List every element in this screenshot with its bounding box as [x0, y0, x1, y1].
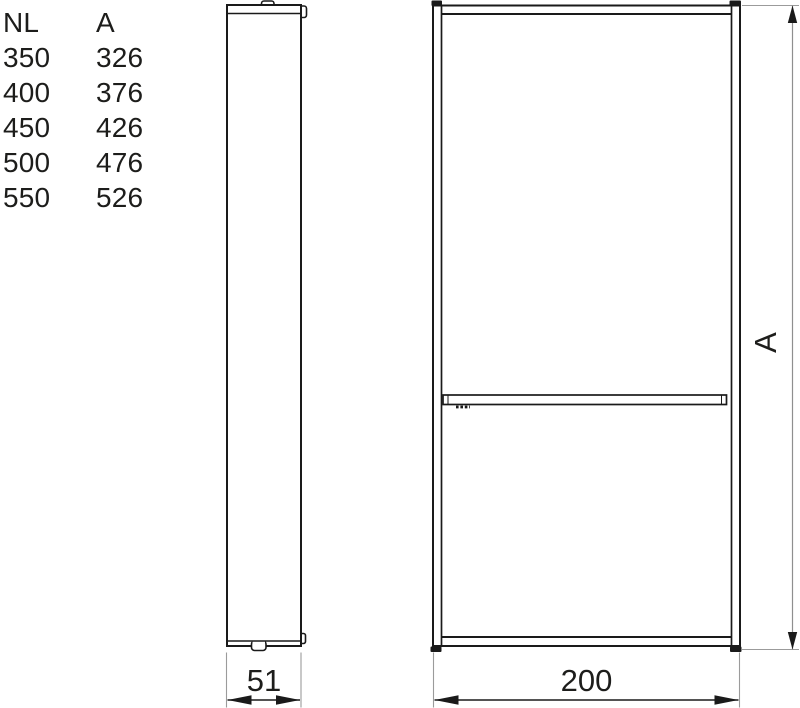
side-body-outline	[227, 5, 301, 646]
front-view	[431, 1, 742, 653]
dimension-side-width: 51	[227, 653, 302, 708]
arrow-up-icon	[788, 6, 797, 24]
arrow-down-icon	[788, 632, 797, 650]
front-bottom-right-foot	[730, 647, 742, 653]
arrow-left-icon	[435, 695, 459, 705]
side-view	[227, 1, 307, 651]
front-width-label: 200	[561, 663, 613, 698]
arrow-right-icon	[715, 695, 739, 705]
front-top-left-cap	[432, 1, 443, 7]
front-bottom-left-foot	[431, 647, 442, 653]
front-body-outline	[433, 6, 740, 647]
front-top-right-cap	[730, 1, 742, 7]
dimension-front-width: 200	[434, 653, 740, 708]
height-label: A	[748, 332, 783, 353]
cabinet-drawing: 51 200 A	[0, 0, 800, 708]
front-shelf	[443, 395, 727, 405]
side-width-label: 51	[247, 663, 281, 698]
dimension-height: A	[742, 6, 799, 650]
technical-drawing-canvas: NL A 350 326 400 376 450 426 500 476 550…	[0, 0, 800, 708]
